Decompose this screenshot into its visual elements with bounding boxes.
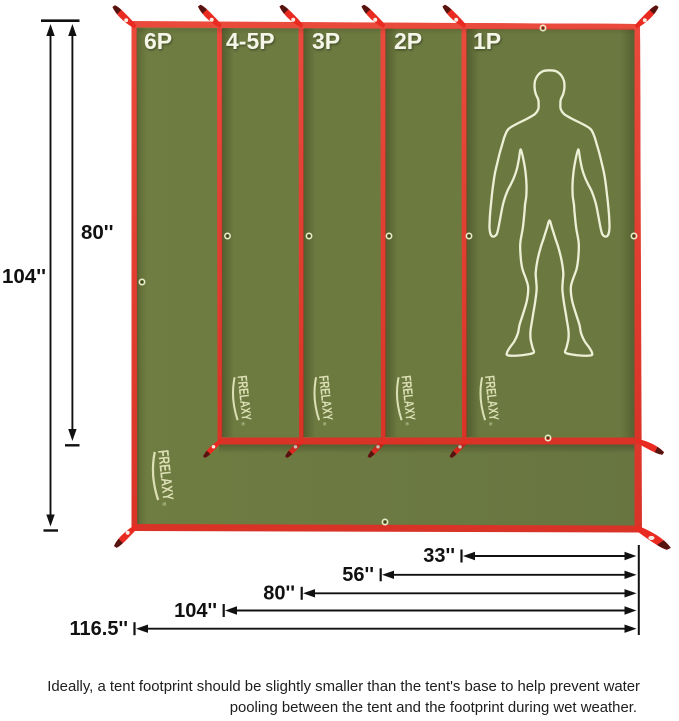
svg-text:pooling between the tent and t: pooling between the tent and the footpri… (230, 700, 637, 716)
svg-text:80'': 80'' (263, 583, 295, 605)
svg-text:6P: 6P (144, 28, 172, 54)
svg-text:56'': 56'' (342, 564, 374, 586)
svg-text:80'': 80'' (81, 221, 114, 244)
svg-text:2P: 2P (394, 28, 422, 54)
svg-text:104'': 104'' (174, 600, 217, 622)
svg-text:104'': 104'' (2, 265, 46, 288)
svg-text:1P: 1P (473, 28, 501, 54)
svg-text:116.5'': 116.5'' (70, 618, 128, 640)
svg-text:Ideally, a tent footprint shou: Ideally, a tent footprint should be slig… (47, 679, 640, 695)
svg-text:4-5P: 4-5P (226, 28, 275, 54)
svg-text:3P: 3P (312, 28, 340, 54)
svg-text:33'': 33'' (423, 545, 455, 567)
